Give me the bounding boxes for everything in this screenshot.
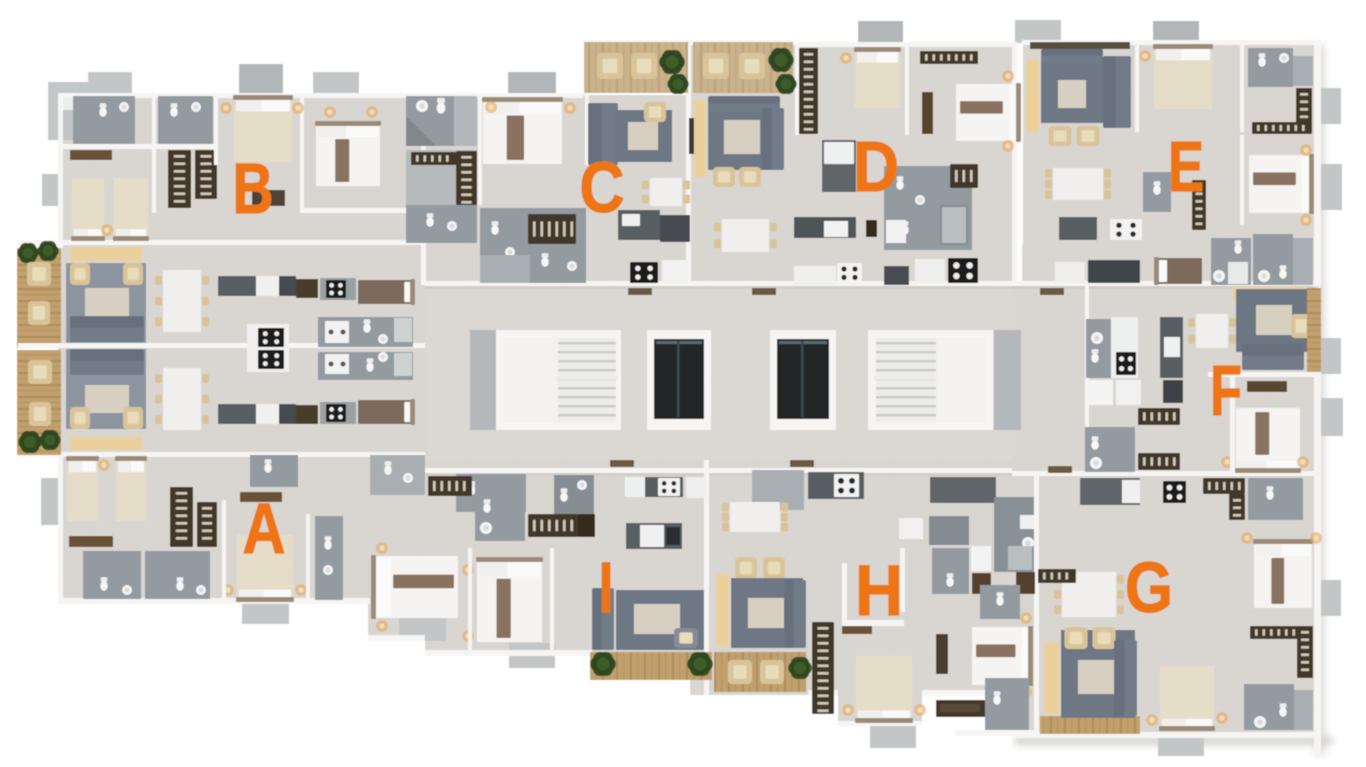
svg-text:I: I [599,549,614,628]
svg-text:C: C [580,149,625,228]
svg-text:D: D [853,128,899,207]
svg-text:H: H [855,552,903,631]
svg-text:E: E [1168,128,1204,207]
svg-text:G: G [1125,549,1173,628]
svg-text:F: F [1210,352,1242,431]
svg-text:A: A [243,490,286,569]
svg-text:B: B [233,150,274,229]
